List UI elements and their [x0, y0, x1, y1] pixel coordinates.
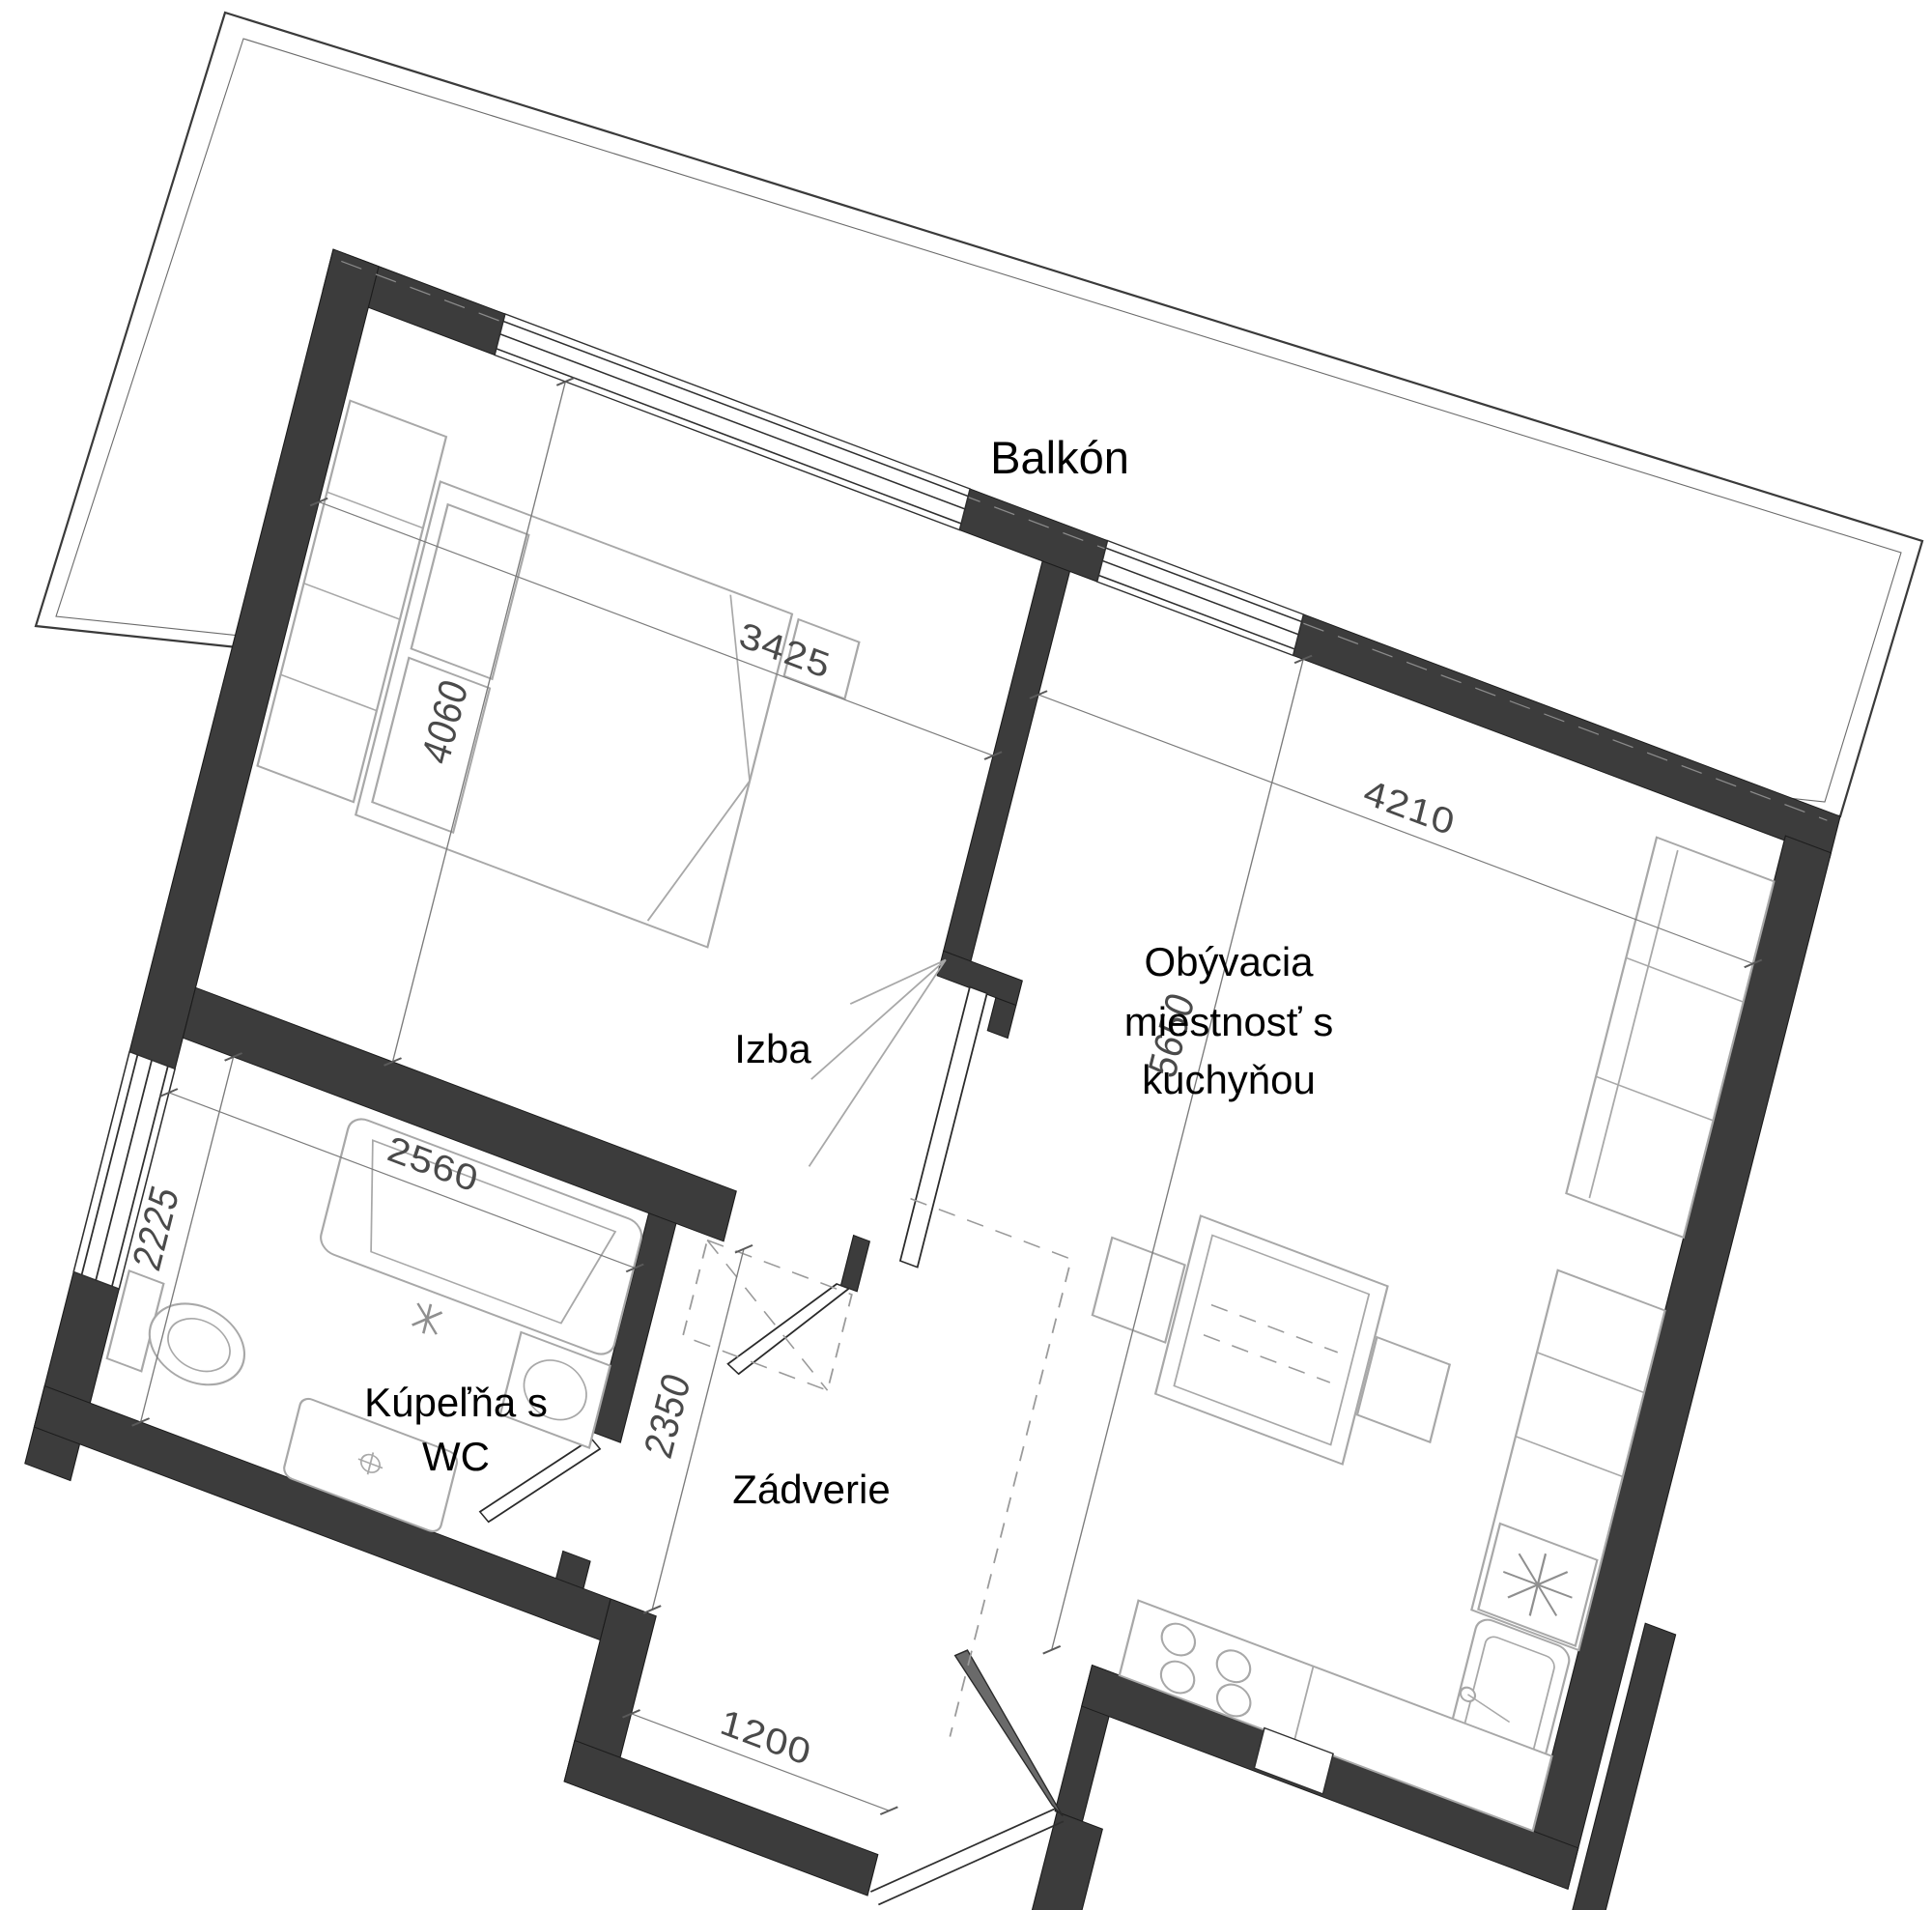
label-obyvacia-line3: kuchyňou	[1142, 1057, 1316, 1102]
label-zadverie: Zádverie	[732, 1467, 890, 1512]
label-kupelna-line2: WC	[422, 1434, 490, 1479]
floor-plan-drawing: 3425 4060 4210 5650	[0, 0, 1932, 1910]
label-obyvacia-line2: miestnosť s	[1124, 999, 1333, 1044]
label-obyvacia-line1: Obývacia	[1144, 939, 1314, 984]
floor-plan-page: 3425 4060 4210 5650	[0, 0, 1932, 1910]
label-izba: Izba	[734, 1026, 811, 1071]
label-balkon: Balkón	[990, 432, 1129, 483]
label-kupelna-line1: Kúpeľňa s	[364, 1380, 548, 1425]
